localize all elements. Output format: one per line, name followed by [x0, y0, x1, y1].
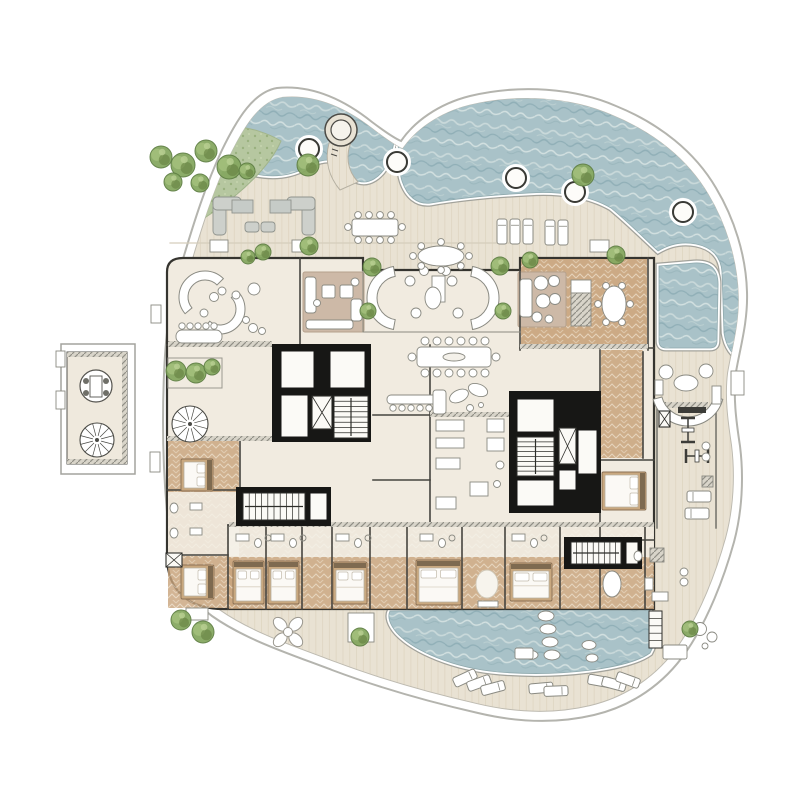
kitchen-island [571, 293, 591, 326]
dining-chair [481, 337, 489, 345]
outdoor-table [674, 375, 698, 391]
bed [233, 561, 264, 604]
tree [166, 361, 186, 381]
kitchen-counter [436, 458, 460, 469]
tree [204, 359, 220, 375]
bed [181, 565, 214, 599]
tree [164, 173, 182, 191]
service-shaft [312, 396, 332, 429]
dining-chair [469, 337, 477, 345]
outdoor-table [232, 200, 253, 213]
dining-chair [457, 369, 465, 377]
tree [191, 174, 209, 192]
booth-seat [103, 390, 109, 396]
pouf [259, 328, 266, 335]
spiral-stair [80, 423, 114, 457]
armchair [340, 285, 353, 298]
tree [150, 146, 172, 168]
sink-vanity [190, 528, 202, 535]
elevator-shaft [578, 430, 597, 474]
elevator-shaft [517, 399, 554, 432]
gym-ball [702, 453, 710, 461]
tree [186, 363, 206, 383]
outdoor-dining-table [352, 219, 398, 236]
tree [360, 303, 376, 319]
toilet [170, 503, 178, 513]
dining-chair [345, 224, 352, 231]
tree [682, 621, 698, 637]
tree [241, 250, 255, 264]
coffee-table [425, 287, 441, 309]
pool-float [586, 654, 598, 662]
bench [478, 601, 498, 607]
tree [239, 163, 255, 179]
dining-chair [399, 224, 406, 231]
lounger [685, 508, 709, 519]
dining-chair [445, 369, 453, 377]
kitchen-island [571, 280, 591, 293]
elevator-lobby [281, 395, 308, 437]
dining-chair [366, 237, 373, 244]
dining-chair [469, 369, 477, 377]
cabinet [652, 592, 668, 601]
floor-mat [650, 548, 664, 562]
dining-chair [355, 237, 362, 244]
dining-chair [492, 353, 500, 361]
tree [255, 244, 271, 260]
fixture [680, 568, 688, 576]
round-chair [707, 632, 717, 642]
sink [496, 461, 504, 469]
laundry-unit [470, 482, 488, 496]
side-table [712, 386, 721, 404]
round-chair [534, 276, 548, 290]
balcony-tab [150, 452, 160, 472]
appliance [487, 438, 504, 451]
elevator-shaft [281, 351, 314, 388]
sofa [306, 320, 353, 329]
bar-counter [176, 330, 222, 343]
sun-lounger [545, 220, 555, 245]
stair-west [334, 396, 368, 438]
tree [495, 303, 511, 319]
balcony-tab [731, 371, 744, 395]
outdoor-dining-table [418, 246, 464, 266]
dining-chair [433, 337, 441, 345]
sink-vanity [190, 503, 202, 510]
fixture [680, 578, 688, 586]
pouf [453, 308, 463, 318]
tree [363, 258, 381, 276]
pouf [249, 324, 258, 333]
deck-platform [590, 240, 609, 252]
sun-lounger [497, 219, 507, 244]
booth-seat [83, 390, 89, 396]
service-shaft [559, 428, 576, 464]
armchair [322, 285, 335, 298]
bar-stool [211, 323, 217, 329]
side-table [467, 405, 474, 412]
spiral-stair [172, 406, 208, 442]
side-table [479, 403, 484, 408]
side-table [248, 283, 260, 295]
side-table [655, 380, 663, 395]
hatched-wall [67, 352, 127, 357]
kitchen-counter [436, 497, 456, 509]
lounger [687, 491, 711, 502]
dining-chair [388, 212, 395, 219]
shaft-room [559, 470, 576, 490]
pouf [232, 291, 240, 299]
sun-lounger [558, 220, 568, 245]
bar-stool [408, 405, 414, 411]
gym-mat [678, 407, 706, 413]
tree [297, 154, 319, 176]
pool-daybed [385, 150, 410, 175]
bar-stool [426, 405, 432, 411]
tree [300, 237, 318, 255]
pouf [243, 317, 250, 324]
pool-daybed [504, 166, 529, 191]
pouf [200, 309, 208, 317]
tree [491, 257, 509, 275]
dining-chair [421, 337, 429, 345]
coffee-table [314, 300, 321, 307]
dining-chair [388, 237, 395, 244]
dining-chair [457, 337, 465, 345]
floor-plan-stage [0, 0, 800, 800]
round-chair [549, 276, 560, 287]
pouf [218, 287, 226, 295]
pouf [405, 276, 415, 286]
gym-mat [702, 476, 713, 487]
bathtub [603, 571, 621, 597]
bed [602, 472, 646, 510]
round-chair [536, 294, 550, 308]
bar-stool [195, 323, 201, 329]
dining-chair [355, 212, 362, 219]
bar-counter [433, 390, 446, 414]
pouf [411, 308, 421, 318]
sun-lounger [523, 219, 533, 244]
bed [333, 562, 367, 604]
bed [181, 459, 213, 491]
pouf [545, 315, 553, 323]
balcony-tab [151, 305, 161, 323]
gym-ball [702, 442, 710, 450]
bed [268, 561, 299, 604]
sun-lounger [510, 219, 520, 244]
pool-float [582, 641, 596, 650]
dining-chair [445, 337, 453, 345]
deck-platform [210, 240, 228, 252]
tree [192, 621, 214, 643]
ottoman [261, 222, 275, 232]
bar-stool [390, 405, 396, 411]
tree [522, 252, 538, 268]
elevator-shaft [330, 351, 365, 388]
sofa [520, 279, 532, 317]
dining-chair [377, 237, 384, 244]
pool-deck-ladder [649, 611, 662, 648]
toilet [170, 528, 178, 538]
bar-stool [203, 323, 209, 329]
outdoor-table [270, 200, 291, 213]
stair-southeast [571, 542, 621, 564]
stair-landing [310, 493, 327, 520]
wood-floor-corridor [601, 350, 643, 458]
dining-table [602, 286, 626, 322]
bar-stool [399, 405, 405, 411]
sofa [305, 277, 316, 313]
bar-stool [417, 405, 423, 411]
side-table [702, 643, 708, 649]
balcony-tab [56, 351, 65, 367]
sink-vanity [645, 578, 653, 590]
bed [510, 563, 552, 601]
hatched-wall [67, 459, 127, 464]
booth-table [90, 376, 102, 397]
kitchen-counter [436, 438, 464, 448]
tree [607, 246, 625, 264]
sink [494, 481, 501, 488]
plunge-pool [659, 263, 718, 348]
tree [217, 155, 241, 179]
booth-seat [103, 378, 109, 384]
dining-chair [421, 369, 429, 377]
pool-float [538, 611, 554, 621]
dining-chair [481, 369, 489, 377]
dining-chair [366, 212, 373, 219]
appliance [487, 419, 504, 432]
tree [351, 628, 369, 646]
floor-plan [0, 0, 800, 800]
bar-stool [187, 323, 193, 329]
booth-seat [83, 378, 89, 384]
pool-platform [515, 648, 533, 659]
pool-float [540, 624, 556, 634]
dining-chair [433, 369, 441, 377]
tree [572, 164, 594, 186]
round-chair [550, 294, 561, 305]
dining-chair [408, 353, 416, 361]
pool-float [542, 637, 558, 647]
outdoor-table [663, 645, 687, 659]
round-chair [659, 365, 673, 379]
stair-east [517, 437, 554, 476]
bar-stool [179, 323, 185, 329]
round-chair [699, 364, 713, 378]
pouf [532, 312, 542, 322]
sun-lounger [544, 686, 568, 697]
tree [171, 610, 191, 630]
pool-float [544, 650, 560, 660]
tree [195, 140, 217, 162]
dining-chair [377, 212, 384, 219]
elevator-lobby [517, 480, 554, 506]
toilet [634, 551, 642, 561]
kitchen-counter [436, 420, 464, 431]
balcony-tab [56, 391, 65, 409]
ottoman [245, 222, 259, 232]
stair-southwest [243, 493, 305, 520]
side-table [351, 278, 359, 286]
hatched-wall [520, 344, 648, 349]
master-bed [416, 560, 461, 605]
pouf [210, 293, 219, 302]
hatched-wall [122, 352, 127, 464]
shower [166, 553, 182, 567]
oval-rug [476, 570, 498, 598]
centerpiece [443, 353, 465, 361]
gym-rack [659, 411, 670, 427]
pool-daybed [671, 200, 696, 225]
pouf [447, 276, 457, 286]
